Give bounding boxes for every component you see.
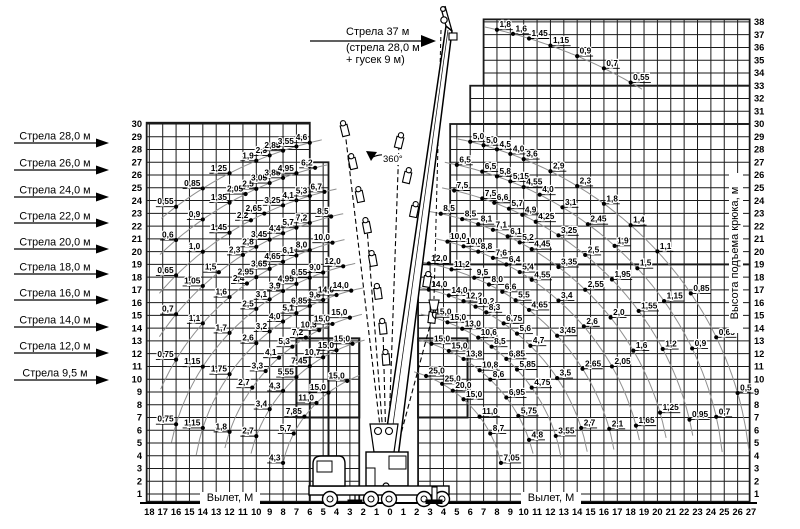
svg-text:1,25: 1,25: [663, 402, 680, 412]
svg-text:3,45: 3,45: [560, 325, 577, 335]
svg-text:35: 35: [754, 55, 764, 65]
svg-text:9,5: 9,5: [477, 267, 489, 277]
boom-pointer: Стрела 14,0 м: [14, 315, 109, 332]
svg-text:38: 38: [754, 17, 764, 27]
svg-text:8,5: 8,5: [465, 209, 477, 219]
svg-text:9: 9: [267, 507, 272, 517]
svg-text:Стрела 24,0 м: Стрела 24,0 м: [19, 185, 90, 197]
crane-load-chart-page: 0,550,851,251,92,32,853,554,60,60,91,352…: [0, 0, 800, 529]
svg-text:9,0: 9,0: [309, 262, 321, 272]
svg-text:30: 30: [754, 119, 764, 129]
svg-text:0,75: 0,75: [157, 414, 174, 424]
svg-text:2,7: 2,7: [584, 417, 596, 427]
annotation-line-3: + гусек 9 м): [346, 54, 466, 66]
svg-text:4: 4: [441, 507, 447, 517]
svg-text:5,6: 5,6: [520, 323, 532, 333]
svg-text:26: 26: [132, 170, 142, 180]
svg-text:2,7: 2,7: [242, 426, 254, 436]
svg-text:2,6: 2,6: [242, 333, 254, 343]
svg-text:6: 6: [754, 425, 759, 435]
svg-text:3,55: 3,55: [558, 425, 575, 435]
svg-text:0,65: 0,65: [157, 265, 174, 275]
svg-text:4,75: 4,75: [534, 377, 551, 387]
svg-text:2,0: 2,0: [613, 307, 625, 317]
svg-text:0,85: 0,85: [184, 178, 201, 188]
svg-text:3,4: 3,4: [561, 290, 573, 300]
svg-text:29: 29: [754, 132, 764, 142]
svg-text:1,5: 1,5: [640, 258, 652, 268]
svg-text:8,5: 8,5: [443, 203, 455, 213]
svg-text:19: 19: [639, 507, 649, 517]
svg-text:6,5: 6,5: [485, 161, 497, 171]
svg-text:5,7: 5,7: [280, 423, 292, 433]
svg-text:17: 17: [132, 285, 142, 295]
svg-text:13,8: 13,8: [466, 348, 483, 358]
svg-text:4,65: 4,65: [264, 251, 281, 261]
svg-text:33: 33: [754, 81, 764, 91]
svg-text:17: 17: [158, 507, 168, 517]
svg-text:5,55: 5,55: [278, 367, 295, 377]
svg-text:1,8: 1,8: [499, 19, 511, 29]
svg-text:5,8: 5,8: [499, 166, 511, 176]
svg-text:13: 13: [211, 507, 221, 517]
svg-text:20: 20: [132, 247, 142, 257]
svg-text:30: 30: [132, 119, 142, 129]
svg-text:4,95: 4,95: [278, 163, 295, 173]
svg-text:8: 8: [494, 507, 499, 517]
svg-text:1,6: 1,6: [516, 23, 528, 33]
svg-text:2,1: 2,1: [612, 418, 624, 428]
svg-text:14,0: 14,0: [431, 279, 448, 289]
svg-text:2,05: 2,05: [614, 356, 631, 366]
boom-pointer: Стрела 26,0 м: [14, 158, 109, 175]
svg-text:15,0: 15,0: [466, 389, 483, 399]
svg-text:15,0: 15,0: [318, 340, 335, 350]
svg-text:2,3: 2,3: [229, 244, 241, 254]
svg-text:3: 3: [428, 507, 433, 517]
svg-text:7: 7: [137, 413, 142, 423]
svg-text:1,5: 1,5: [205, 262, 217, 272]
svg-text:12: 12: [224, 507, 234, 517]
svg-text:1,0: 1,0: [189, 241, 201, 251]
svg-text:0,55: 0,55: [633, 72, 650, 82]
svg-text:3,45: 3,45: [251, 229, 268, 239]
svg-text:Стрела 28,0 м: Стрела 28,0 м: [19, 131, 90, 143]
svg-text:10,0: 10,0: [314, 232, 331, 242]
svg-text:8,1: 8,1: [481, 214, 493, 224]
svg-text:11,0: 11,0: [298, 393, 314, 403]
svg-text:4,1: 4,1: [282, 190, 294, 200]
svg-text:7,5: 7,5: [457, 180, 469, 190]
svg-text:5,3: 5,3: [278, 336, 290, 346]
svg-text:8,5: 8,5: [494, 336, 506, 346]
boom-pointer: Стрела 20,0 м: [14, 237, 109, 254]
svg-text:3,5: 3,5: [560, 368, 572, 378]
svg-text:19: 19: [754, 260, 764, 270]
svg-text:8,0: 8,0: [491, 274, 503, 284]
svg-text:29: 29: [132, 132, 142, 142]
svg-text:4,3: 4,3: [269, 380, 281, 390]
svg-text:11,2: 11,2: [454, 259, 470, 269]
svg-text:24: 24: [706, 507, 717, 517]
svg-text:26: 26: [732, 507, 742, 517]
svg-text:3: 3: [137, 464, 142, 474]
svg-text:22: 22: [754, 221, 764, 231]
svg-text:6: 6: [307, 507, 312, 517]
svg-text:15: 15: [132, 311, 142, 321]
svg-text:14: 14: [132, 323, 143, 333]
svg-text:6,95: 6,95: [509, 387, 526, 397]
svg-text:14: 14: [572, 507, 583, 517]
svg-text:Стрела 16,0 м: Стрела 16,0 м: [19, 288, 90, 300]
svg-text:4: 4: [137, 451, 143, 461]
boom-pointer: Стрела 22,0 м: [14, 211, 109, 228]
svg-text:28: 28: [754, 145, 764, 155]
svg-text:4,3: 4,3: [269, 452, 281, 462]
svg-text:2,6: 2,6: [586, 316, 598, 326]
svg-text:2,7: 2,7: [238, 377, 250, 387]
svg-text:12,0: 12,0: [431, 253, 448, 263]
svg-text:11,0: 11,0: [482, 406, 498, 416]
svg-text:1: 1: [137, 489, 142, 499]
svg-text:0,9: 0,9: [580, 46, 592, 56]
svg-text:5: 5: [454, 507, 459, 517]
svg-text:5,2: 5,2: [522, 232, 534, 242]
svg-text:18: 18: [625, 507, 635, 517]
svg-text:17: 17: [754, 285, 764, 295]
svg-text:16: 16: [599, 507, 609, 517]
svg-text:6,85: 6,85: [291, 295, 308, 305]
svg-text:3,3: 3,3: [252, 360, 264, 370]
svg-text:11: 11: [132, 362, 142, 372]
svg-text:7,6: 7,6: [495, 247, 507, 257]
svg-text:Стрела 12,0 м: Стрела 12,0 м: [19, 341, 90, 353]
boom-pointer: Стрела 9,5 м: [14, 368, 109, 385]
svg-text:4,1: 4,1: [265, 347, 277, 357]
x-axis-title-right: Вылет, М: [521, 492, 581, 504]
svg-text:21: 21: [132, 234, 142, 244]
svg-text:5,3: 5,3: [296, 185, 308, 195]
svg-text:5,85: 5,85: [520, 359, 537, 369]
svg-text:6,6: 6,6: [497, 192, 509, 202]
svg-text:6,1: 6,1: [510, 226, 522, 236]
svg-text:1,1: 1,1: [189, 313, 201, 323]
svg-text:2,45: 2,45: [590, 214, 607, 224]
boom-pointer: Стрела 16,0 м: [14, 288, 109, 305]
svg-text:15,0: 15,0: [310, 382, 327, 392]
svg-text:1,2: 1,2: [665, 339, 677, 349]
svg-text:25,0: 25,0: [429, 366, 446, 376]
svg-text:0,85: 0,85: [693, 283, 710, 293]
x-axis-title-left: Вылет, М: [200, 492, 260, 504]
svg-text:11: 11: [532, 507, 542, 517]
svg-text:11: 11: [238, 507, 248, 517]
svg-text:2,65: 2,65: [585, 358, 602, 368]
svg-text:36: 36: [754, 43, 764, 53]
svg-text:0,5: 0,5: [740, 383, 752, 393]
svg-text:4,45: 4,45: [534, 239, 551, 249]
svg-text:6,5: 6,5: [459, 154, 471, 164]
rotation-360-label: 360°: [382, 154, 404, 165]
svg-text:Стрела 14,0 м: Стрела 14,0 м: [19, 315, 90, 327]
svg-text:6,2: 6,2: [301, 157, 313, 167]
svg-text:5: 5: [137, 438, 142, 448]
svg-text:25: 25: [132, 183, 142, 193]
y-axis-title-hook-height: Высота подъема крюка, м: [729, 173, 743, 333]
svg-text:2,9: 2,9: [553, 161, 565, 171]
svg-text:4,0: 4,0: [542, 184, 554, 194]
svg-text:2,65: 2,65: [246, 203, 263, 213]
svg-text:7,85: 7,85: [286, 406, 303, 416]
svg-text:10,0: 10,0: [450, 231, 467, 241]
svg-text:15,0: 15,0: [331, 307, 348, 317]
boom-pointer: Стрела 24,0 м: [14, 185, 109, 202]
svg-text:14: 14: [198, 507, 209, 517]
load-chart-canvas: 0,550,851,251,92,32,853,554,60,60,91,352…: [0, 0, 800, 529]
svg-text:23: 23: [132, 209, 142, 219]
svg-text:5,75: 5,75: [521, 405, 538, 415]
svg-text:12: 12: [132, 349, 142, 359]
svg-text:22: 22: [132, 221, 142, 231]
svg-text:1,7: 1,7: [216, 322, 228, 332]
svg-text:6,1: 6,1: [282, 245, 294, 255]
svg-text:3: 3: [347, 507, 352, 517]
svg-text:5,0: 5,0: [473, 131, 485, 141]
svg-text:20: 20: [754, 247, 764, 257]
svg-text:18: 18: [132, 272, 142, 282]
svg-text:7: 7: [294, 507, 299, 517]
annotation-line-2: (стрела 28,0 м: [346, 42, 466, 54]
svg-text:1,9: 1,9: [242, 150, 254, 160]
svg-text:15,0: 15,0: [314, 313, 331, 323]
svg-text:25: 25: [754, 183, 764, 193]
svg-text:7,2: 7,2: [296, 212, 308, 222]
svg-text:0,55: 0,55: [157, 196, 174, 206]
svg-text:15,0: 15,0: [329, 370, 346, 380]
svg-text:4,25: 4,25: [538, 211, 555, 221]
svg-text:1: 1: [374, 507, 379, 517]
svg-text:1,35: 1,35: [211, 192, 228, 202]
svg-text:1,45: 1,45: [532, 28, 549, 38]
svg-text:1,15: 1,15: [184, 356, 201, 366]
svg-text:7,5: 7,5: [485, 188, 497, 198]
svg-text:21: 21: [754, 234, 764, 244]
svg-text:24: 24: [132, 196, 143, 206]
svg-text:5,5: 5,5: [518, 290, 530, 300]
svg-text:24: 24: [754, 196, 765, 206]
svg-text:16: 16: [171, 507, 181, 517]
svg-text:3,4: 3,4: [256, 399, 268, 409]
svg-text:0,9: 0,9: [695, 338, 707, 348]
svg-text:21: 21: [666, 507, 676, 517]
svg-text:15: 15: [184, 507, 194, 517]
svg-text:4: 4: [754, 451, 760, 461]
svg-text:5,4: 5,4: [522, 262, 534, 272]
svg-text:1,75: 1,75: [211, 364, 228, 374]
svg-text:8: 8: [754, 400, 759, 410]
svg-text:0,95: 0,95: [692, 409, 709, 419]
svg-text:Стрела 9,5 м: Стрела 9,5 м: [22, 368, 87, 380]
svg-text:8,6: 8,6: [493, 369, 505, 379]
svg-text:1,55: 1,55: [641, 300, 658, 310]
svg-text:6,85: 6,85: [509, 348, 526, 358]
svg-text:0,6: 0,6: [162, 230, 174, 240]
svg-text:15: 15: [754, 311, 764, 321]
svg-text:32: 32: [754, 94, 764, 104]
svg-text:9: 9: [508, 507, 513, 517]
svg-text:8: 8: [280, 507, 285, 517]
svg-text:12: 12: [545, 507, 555, 517]
svg-text:6,6: 6,6: [505, 281, 517, 291]
svg-text:15: 15: [585, 507, 595, 517]
svg-text:5,7: 5,7: [282, 217, 294, 227]
annotation-line-1: Стрела 37 м: [346, 26, 466, 38]
svg-text:1,15: 1,15: [553, 35, 570, 45]
svg-text:26: 26: [754, 170, 764, 180]
svg-text:3,1: 3,1: [256, 289, 268, 299]
svg-text:4,4: 4,4: [269, 223, 281, 233]
svg-text:6,75: 6,75: [506, 313, 523, 323]
svg-text:1,6: 1,6: [216, 287, 228, 297]
svg-text:13: 13: [132, 336, 142, 346]
svg-text:2,55: 2,55: [588, 279, 605, 289]
svg-text:10: 10: [519, 507, 529, 517]
svg-text:3,25: 3,25: [561, 225, 578, 235]
svg-text:17: 17: [612, 507, 622, 517]
svg-text:11: 11: [754, 362, 764, 372]
svg-text:13,0: 13,0: [465, 318, 482, 328]
svg-text:23: 23: [692, 507, 702, 517]
svg-text:4,8: 4,8: [532, 429, 544, 439]
svg-text:12: 12: [754, 349, 764, 359]
svg-text:18: 18: [144, 507, 154, 517]
svg-text:0,75: 0,75: [157, 349, 174, 359]
svg-text:1,15: 1,15: [184, 417, 201, 427]
svg-text:5,7: 5,7: [511, 198, 523, 208]
svg-text:3,35: 3,35: [561, 257, 578, 267]
svg-text:8,7: 8,7: [493, 423, 505, 433]
svg-text:3,1: 3,1: [565, 197, 577, 207]
svg-text:8,0: 8,0: [296, 240, 308, 250]
svg-text:31: 31: [754, 106, 764, 116]
svg-text:10: 10: [132, 374, 142, 384]
svg-text:Стрела 18,0 м: Стрела 18,0 м: [19, 262, 90, 274]
svg-text:34: 34: [754, 68, 765, 78]
svg-text:2,5: 2,5: [242, 298, 254, 308]
svg-text:1,95: 1,95: [614, 269, 631, 279]
svg-text:6: 6: [468, 507, 473, 517]
svg-text:12,0: 12,0: [325, 256, 342, 266]
svg-text:4,9: 4,9: [525, 204, 537, 214]
svg-text:1: 1: [754, 489, 759, 499]
svg-text:4,6: 4,6: [296, 132, 308, 142]
svg-text:1,6: 1,6: [636, 340, 648, 350]
svg-text:10: 10: [251, 507, 261, 517]
svg-text:14,0: 14,0: [333, 280, 350, 290]
svg-text:4,0: 4,0: [269, 311, 281, 321]
svg-text:2,3: 2,3: [580, 175, 592, 185]
svg-text:1,4: 1,4: [633, 215, 645, 225]
svg-text:0,9: 0,9: [189, 209, 201, 219]
svg-text:1,45: 1,45: [211, 222, 228, 232]
svg-text:4,55: 4,55: [526, 177, 543, 187]
svg-text:4,0: 4,0: [513, 143, 525, 153]
svg-text:9: 9: [754, 387, 759, 397]
svg-text:1,8: 1,8: [606, 193, 618, 203]
svg-text:14: 14: [754, 323, 765, 333]
svg-text:6,7: 6,7: [310, 181, 322, 191]
svg-text:2: 2: [754, 476, 759, 486]
svg-text:0,7: 0,7: [162, 304, 174, 314]
svg-text:1,05: 1,05: [184, 275, 201, 285]
svg-text:7,1: 7,1: [495, 219, 507, 229]
svg-text:7: 7: [481, 507, 486, 517]
svg-text:4,55: 4,55: [534, 269, 551, 279]
svg-text:4,65: 4,65: [532, 299, 549, 309]
svg-text:0: 0: [387, 507, 392, 517]
svg-text:23: 23: [754, 209, 764, 219]
svg-text:7: 7: [754, 413, 759, 423]
svg-text:4,7: 4,7: [533, 335, 545, 345]
svg-text:1,1: 1,1: [660, 241, 672, 251]
svg-text:13: 13: [754, 336, 764, 346]
svg-text:3,2: 3,2: [256, 321, 268, 331]
svg-text:6,55: 6,55: [291, 267, 308, 277]
svg-text:5,0: 5,0: [486, 135, 498, 145]
boom-pointer: Стрела 18,0 м: [14, 262, 109, 279]
svg-text:19: 19: [132, 260, 142, 270]
boom-37-annotation: Стрела 37 м (стрела 28,0 м + гусек 9 м): [346, 26, 466, 66]
svg-text:1,65: 1,65: [639, 415, 656, 425]
svg-text:1,8: 1,8: [216, 421, 228, 431]
svg-text:15,0: 15,0: [434, 333, 451, 343]
svg-text:1,25: 1,25: [211, 163, 228, 173]
svg-text:Стрела 26,0 м: Стрела 26,0 м: [19, 158, 90, 170]
svg-text:18: 18: [754, 272, 764, 282]
boom-pointer: Стрела 12,0 м: [14, 341, 109, 358]
svg-text:0,7: 0,7: [606, 58, 618, 68]
svg-text:1,15: 1,15: [667, 291, 684, 301]
svg-text:1: 1: [401, 507, 406, 517]
grid-lines: [147, 19, 750, 501]
svg-text:9: 9: [137, 387, 142, 397]
svg-text:Стрела 22,0 м: Стрела 22,0 м: [19, 211, 90, 223]
svg-text:8,8: 8,8: [481, 241, 493, 251]
svg-text:0,7: 0,7: [719, 406, 731, 416]
svg-text:3,55: 3,55: [278, 136, 295, 146]
svg-text:28: 28: [132, 145, 142, 155]
boom-pointer: Стрела 28,0 м: [14, 131, 109, 148]
svg-text:3,6: 3,6: [526, 149, 538, 159]
svg-text:4,5: 4,5: [499, 139, 511, 149]
svg-text:5: 5: [754, 438, 759, 448]
svg-text:15,0: 15,0: [334, 333, 351, 343]
svg-text:27: 27: [754, 157, 764, 167]
svg-text:2,5: 2,5: [588, 244, 600, 254]
svg-text:3: 3: [754, 464, 759, 474]
svg-text:Стрела 20,0 м: Стрела 20,0 м: [19, 237, 90, 249]
svg-text:10: 10: [754, 374, 764, 384]
svg-text:13: 13: [559, 507, 569, 517]
svg-text:27: 27: [132, 157, 142, 167]
svg-text:16: 16: [754, 298, 764, 308]
svg-text:25: 25: [719, 507, 729, 517]
svg-text:2: 2: [414, 507, 419, 517]
svg-text:8,3: 8,3: [489, 302, 501, 312]
svg-text:16: 16: [132, 298, 142, 308]
svg-text:7,05: 7,05: [503, 452, 520, 462]
svg-text:27: 27: [746, 507, 756, 517]
